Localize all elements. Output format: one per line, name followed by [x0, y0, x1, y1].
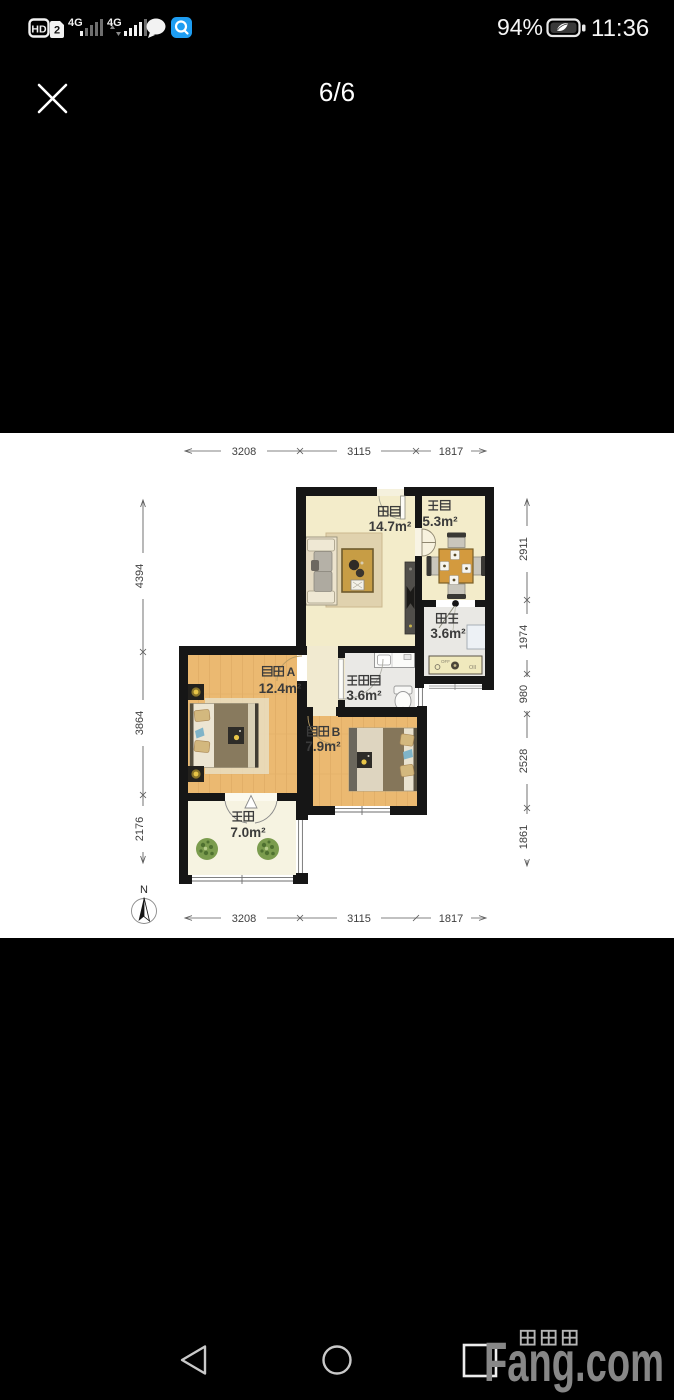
svg-text:2: 2: [54, 25, 60, 37]
svg-text:2528: 2528: [518, 749, 530, 773]
svg-text:11:36: 11:36: [591, 15, 649, 42]
svg-text:4394: 4394: [134, 564, 146, 588]
svg-text:94%: 94%: [497, 14, 543, 40]
svg-text:12.4m²: 12.4m²: [259, 681, 302, 696]
svg-text:1817: 1817: [439, 913, 463, 925]
svg-text:OII: OII: [469, 665, 477, 671]
svg-text:7.0m²: 7.0m²: [230, 825, 266, 840]
svg-text:3864: 3864: [134, 711, 146, 735]
svg-text:A: A: [287, 665, 296, 679]
svg-text:3115: 3115: [347, 913, 371, 925]
svg-text:6/6: 6/6: [319, 77, 355, 107]
svg-text:4G: 4G: [68, 17, 83, 29]
svg-text:B: B: [332, 725, 341, 739]
svg-text:Fang.com: Fang.com: [484, 1330, 664, 1393]
svg-text:OFF: OFF: [441, 659, 450, 664]
svg-text:2911: 2911: [518, 537, 530, 561]
svg-text:1974: 1974: [518, 625, 530, 649]
svg-text:3115: 3115: [347, 446, 371, 458]
svg-text:4G: 4G: [107, 17, 122, 29]
svg-text:1817: 1817: [439, 446, 463, 458]
svg-text:N: N: [140, 884, 148, 896]
svg-text:3.6m²: 3.6m²: [346, 688, 382, 703]
svg-text:980: 980: [518, 685, 530, 703]
svg-text:7.9m²: 7.9m²: [305, 739, 341, 754]
svg-text:3208: 3208: [232, 913, 256, 925]
svg-text:3208: 3208: [232, 446, 256, 458]
svg-text:14.7m²: 14.7m²: [369, 519, 412, 534]
svg-text:2176: 2176: [134, 817, 146, 841]
svg-text:3.6m²: 3.6m²: [430, 626, 466, 641]
svg-text:HD: HD: [31, 24, 47, 36]
svg-text:5.3m²: 5.3m²: [422, 514, 458, 529]
svg-text:1861: 1861: [518, 825, 530, 849]
